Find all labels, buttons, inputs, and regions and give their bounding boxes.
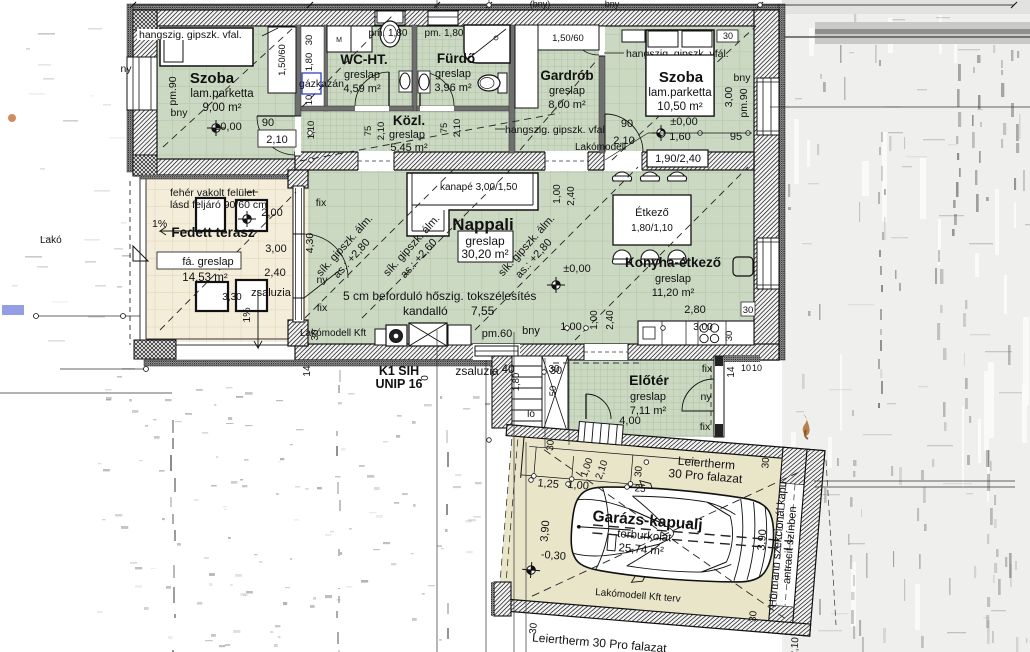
svg-text:30: 30 xyxy=(545,439,557,451)
svg-text:fix: fix xyxy=(702,363,713,375)
svg-text:10: 10 xyxy=(752,363,762,373)
svg-text:1,00: 1,00 xyxy=(552,184,563,204)
svg-text:1,90/2,40: 1,90/2,40 xyxy=(655,153,701,165)
svg-text:14,53 m²: 14,53 m² xyxy=(182,272,228,284)
svg-text:fix: fix xyxy=(317,302,328,314)
svg-text:Nappali: Nappali xyxy=(452,215,513,234)
svg-text:bny: bny xyxy=(734,72,752,84)
svg-text:14: 14 xyxy=(302,365,313,377)
svg-text:M: M xyxy=(336,37,342,44)
svg-text:1,00: 1,00 xyxy=(589,310,600,330)
svg-text:3,00: 3,00 xyxy=(265,243,286,255)
svg-text:1,80/1,10: 1,80/1,10 xyxy=(631,223,673,234)
svg-text:75: 75 xyxy=(439,123,450,134)
svg-text:lam.parketta: lam.parketta xyxy=(648,87,712,99)
svg-text:3,30: 3,30 xyxy=(222,292,242,303)
svg-text:greslap: greslap xyxy=(435,68,471,80)
svg-text:±0,00: ±0,00 xyxy=(563,263,590,275)
svg-text:30: 30 xyxy=(760,457,772,469)
svg-text:14: 14 xyxy=(726,366,737,378)
svg-text:1%: 1% xyxy=(241,307,253,322)
svg-text:11,20 m²: 11,20 m² xyxy=(652,287,695,299)
svg-text:pm.90: pm.90 xyxy=(167,76,179,105)
svg-text:2,40: 2,40 xyxy=(264,267,285,279)
svg-text:ny: ny xyxy=(316,274,328,286)
svg-text:30: 30 xyxy=(723,31,733,41)
svg-text:50: 50 xyxy=(548,386,559,397)
svg-text:2,10: 2,10 xyxy=(789,636,802,652)
svg-text:2,10: 2,10 xyxy=(452,119,463,138)
svg-text:10: 10 xyxy=(304,95,315,106)
svg-text:3,90: 3,90 xyxy=(756,529,770,551)
svg-text:1,80: 1,80 xyxy=(511,373,522,392)
svg-text:fehér vakolt felület: fehér vakolt felület xyxy=(170,187,255,199)
svg-text:Étkező: Étkező xyxy=(635,206,669,219)
svg-text:75: 75 xyxy=(363,126,374,137)
svg-text:hangszig. gipszk. vfal: hangszig. gipszk. vfal xyxy=(505,124,605,136)
svg-text:3,00: 3,00 xyxy=(723,87,735,108)
svg-text:lam.parketta: lam.parketta xyxy=(190,88,254,100)
svg-text:1,10: 1,10 xyxy=(306,121,317,140)
svg-text:kanapé 3,00/1,50: kanapé 3,00/1,50 xyxy=(440,182,518,193)
svg-text:Szoba: Szoba xyxy=(190,70,235,87)
svg-text:4,59 m²: 4,59 m² xyxy=(343,83,381,95)
svg-text:10: 10 xyxy=(741,363,751,373)
svg-text:3,00: 3,00 xyxy=(693,322,713,333)
svg-text:gázkazán: gázkazán xyxy=(299,78,344,90)
svg-text:Konyha-étkező: Konyha-étkező xyxy=(625,255,721,270)
svg-text:±0,00: ±0,00 xyxy=(214,121,241,133)
svg-text:9,00 m²: 9,00 m² xyxy=(203,102,242,114)
svg-text:bny: bny xyxy=(605,0,620,9)
svg-text:greslap: greslap xyxy=(389,129,425,141)
svg-text:1,25: 1,25 xyxy=(537,477,559,491)
svg-text:Gardrób: Gardrób xyxy=(540,68,593,83)
svg-text:1,50/60: 1,50/60 xyxy=(277,44,288,76)
svg-text:greslap: greslap xyxy=(655,273,691,285)
svg-text:-0,30: -0,30 xyxy=(540,549,566,563)
svg-text:5 cm beforduló hőszig. tokszél: 5 cm beforduló hőszig. tokszélesítés xyxy=(343,289,536,303)
svg-text:2,80: 2,80 xyxy=(684,304,705,316)
svg-text:bny: bny xyxy=(522,325,540,337)
svg-text:pm.90: pm.90 xyxy=(738,88,750,117)
svg-text:10,50 m²: 10,50 m² xyxy=(657,101,703,113)
svg-text:3,90: 3,90 xyxy=(539,520,553,542)
svg-text:0: 0 xyxy=(420,375,431,381)
svg-text:lásd feljáró 90/60 cm: lásd feljáró 90/60 cm xyxy=(170,199,267,211)
svg-text:2,00: 2,00 xyxy=(261,207,282,219)
svg-text:greslap: greslap xyxy=(549,85,585,97)
svg-text:30,20 m²: 30,20 m² xyxy=(461,247,508,261)
svg-text:8,00 m²: 8,00 m² xyxy=(548,99,586,111)
svg-text:3,96 m²: 3,96 m² xyxy=(434,82,472,94)
svg-text:30: 30 xyxy=(743,305,754,316)
svg-text:90: 90 xyxy=(262,117,274,129)
svg-text:30: 30 xyxy=(748,610,760,622)
svg-text:ló: ló xyxy=(527,409,535,420)
svg-text:30: 30 xyxy=(548,364,560,375)
svg-text:pm. 1,80: pm. 1,80 xyxy=(425,28,464,39)
svg-text:(bny): (bny) xyxy=(530,0,551,9)
svg-text:ny: ny xyxy=(120,63,132,75)
svg-text:fix: fix xyxy=(700,421,711,433)
svg-text:greslap: greslap xyxy=(630,391,666,403)
svg-text:Fedett terasz: Fedett terasz xyxy=(171,225,255,240)
svg-text:30: 30 xyxy=(724,331,735,342)
svg-text:UNIP 16: UNIP 16 xyxy=(375,377,422,391)
svg-text:WC-HT.: WC-HT. xyxy=(340,52,387,67)
svg-text:Közl.: Közl. xyxy=(393,113,425,128)
svg-text:±0,00: ±0,00 xyxy=(670,116,697,128)
svg-text:zsaluzia: zsaluzia xyxy=(251,287,292,299)
svg-text:30: 30 xyxy=(304,35,315,46)
svg-text:pm.60: pm.60 xyxy=(482,328,513,340)
svg-text:2,10: 2,10 xyxy=(266,134,287,146)
svg-text:zsaluzia: zsaluzia xyxy=(455,364,499,378)
svg-text:5,45 m²: 5,45 m² xyxy=(390,142,428,154)
svg-text:1,80: 1,80 xyxy=(304,53,315,72)
svg-text:fá. greslap: fá. greslap xyxy=(182,256,233,268)
svg-text:ny: ny xyxy=(700,391,712,403)
svg-text:2,40: 2,40 xyxy=(566,186,577,206)
svg-text:greslap: greslap xyxy=(344,69,380,81)
svg-text:1,00: 1,00 xyxy=(567,479,589,493)
svg-text:fix: fix xyxy=(316,197,327,209)
svg-text:1,00: 1,00 xyxy=(560,321,581,333)
svg-text:2,10: 2,10 xyxy=(376,122,387,141)
svg-text:7,55: 7,55 xyxy=(471,304,495,318)
svg-text:90: 90 xyxy=(621,118,633,130)
svg-text:4,30: 4,30 xyxy=(304,233,316,254)
svg-text:pm. 1,80: pm. 1,80 xyxy=(369,28,408,39)
svg-text:kandalló: kandalló xyxy=(403,304,448,318)
svg-text:greslap: greslap xyxy=(465,234,505,248)
svg-text:30: 30 xyxy=(633,465,645,477)
svg-text:25: 25 xyxy=(634,483,646,495)
svg-text:Lakómodell: Lakómodell xyxy=(575,142,626,153)
svg-text:Szoba: Szoba xyxy=(659,69,704,86)
svg-text:Előtér: Előtér xyxy=(629,372,669,388)
svg-text:1,50/60: 1,50/60 xyxy=(552,33,584,44)
svg-text:2,40: 2,40 xyxy=(605,310,616,330)
svg-text:hangszig. gipszk. vfal.: hangszig. gipszk. vfal. xyxy=(139,29,242,41)
svg-text:K1 SIH: K1 SIH xyxy=(379,364,419,378)
svg-text:Fürdő: Fürdő xyxy=(437,51,475,66)
svg-text:bny: bny xyxy=(171,107,189,119)
svg-text:Lakó: Lakó xyxy=(40,235,62,246)
svg-text:Lakómodell Kft: Lakómodell Kft xyxy=(300,328,366,339)
